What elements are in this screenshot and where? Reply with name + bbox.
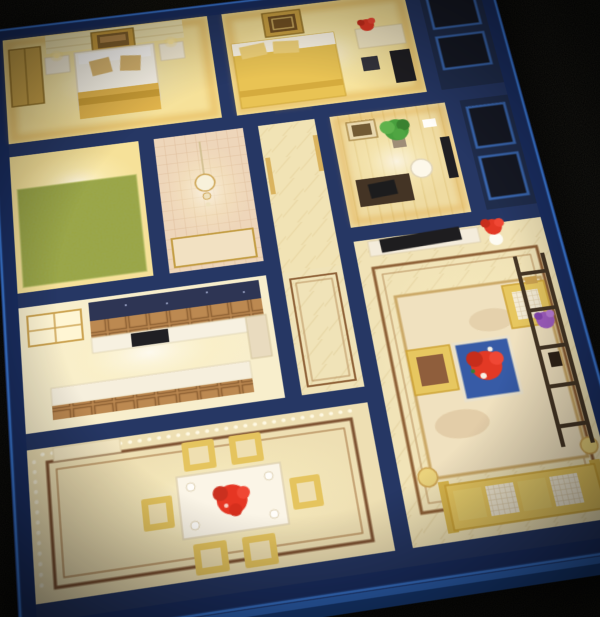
apartment-scale-model xyxy=(0,0,600,617)
photo-of-apartment-model xyxy=(0,0,600,617)
